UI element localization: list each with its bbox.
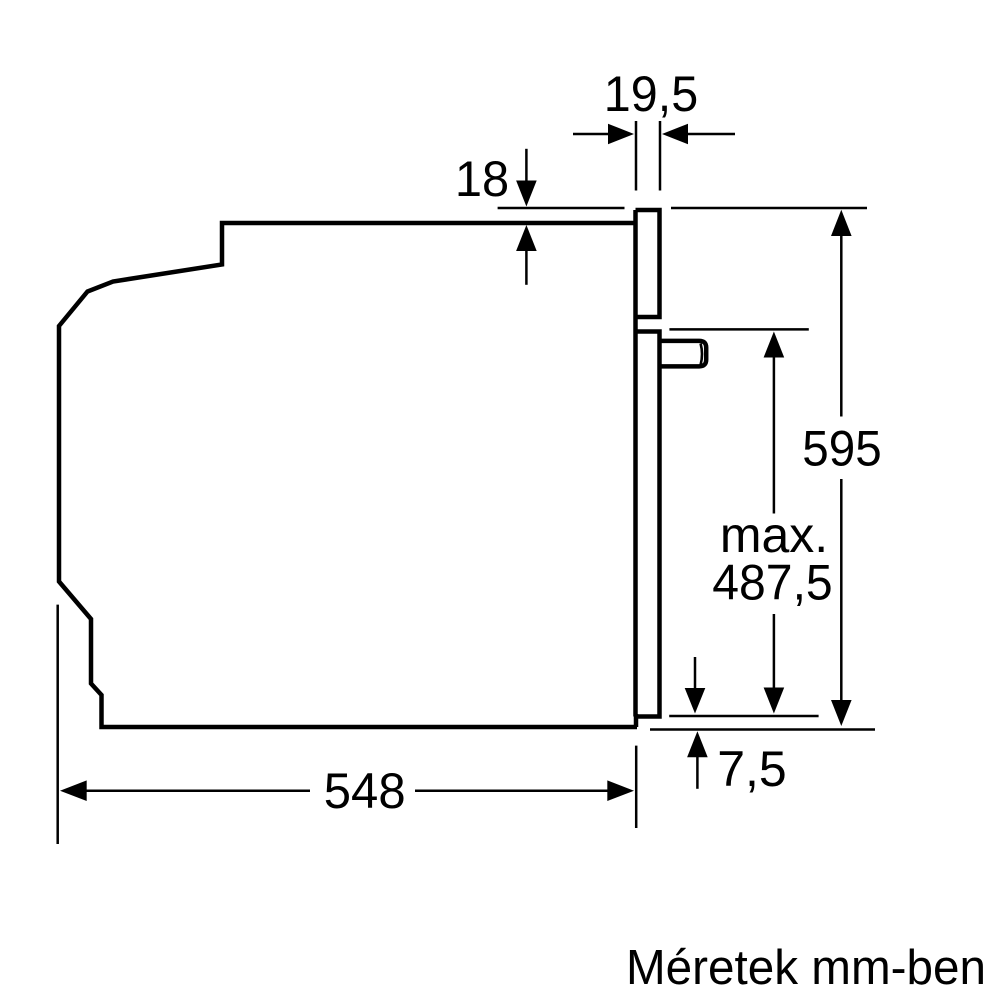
svg-text:595: 595 <box>802 421 881 477</box>
svg-text:Méretek mm-ben: Méretek mm-ben <box>626 941 986 995</box>
svg-text:487,5: 487,5 <box>712 555 832 611</box>
svg-text:19,5: 19,5 <box>604 66 698 122</box>
svg-text:548: 548 <box>324 763 406 819</box>
svg-text:7,5: 7,5 <box>717 741 787 797</box>
svg-text:18: 18 <box>455 151 509 207</box>
